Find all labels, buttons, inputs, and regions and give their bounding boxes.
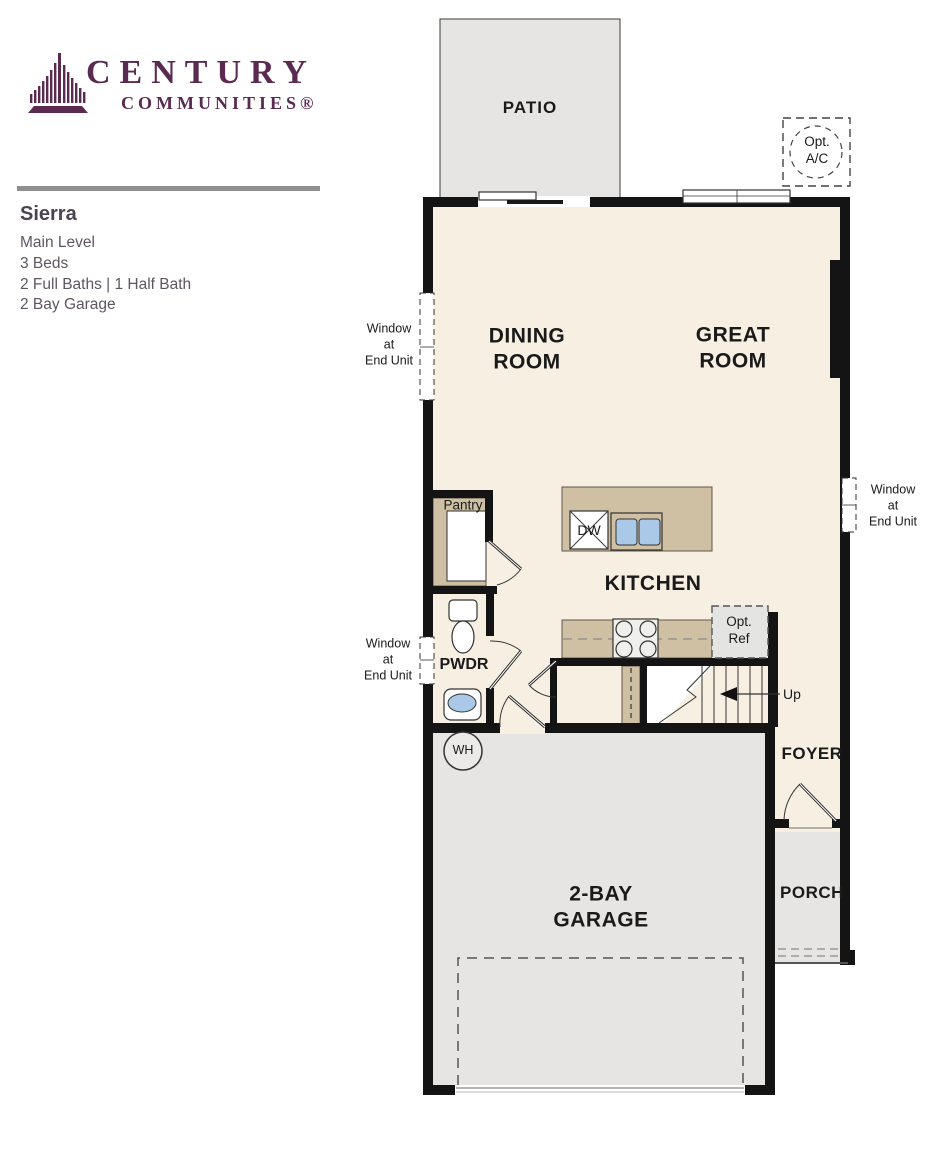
window-note-line1: Window (869, 482, 917, 498)
label-dishwasher: DW (577, 522, 600, 538)
label-porch: PORCH (780, 883, 844, 903)
sliding-door-panel-outer (479, 192, 536, 200)
end-unit-window-dining (420, 293, 434, 400)
window-note-line2: at (365, 337, 413, 353)
label-kitchen: KITCHEN (605, 571, 702, 597)
toilet-tank-icon (449, 600, 477, 621)
floorplan-page: CENTURY COMMUNITIES® Sierra Main Level 3… (0, 0, 943, 1150)
label-patio: PATIO (503, 98, 557, 118)
wall-garage-right (765, 723, 775, 1095)
garage-door-opening (455, 1085, 745, 1095)
label-dining-line2: ROOM (489, 349, 566, 375)
garage-entry-opening (500, 722, 545, 734)
label-garage-line2: GARAGE (553, 907, 648, 933)
sliding-door-panel-inner (507, 200, 563, 204)
window-note-line2: at (869, 498, 917, 514)
window-note-line3: End Unit (365, 353, 413, 369)
label-opt-ac-line2: A/C (804, 151, 830, 168)
label-window-end-unit-pwdr: Window at End Unit (364, 636, 412, 683)
wall-garage-top (428, 723, 775, 733)
pantry-shelf-inner (447, 511, 486, 581)
label-opt-ref: Opt. Ref (726, 614, 752, 648)
wall-closet-right (640, 666, 647, 726)
label-opt-ref-line2: Ref (726, 631, 752, 648)
wall-hall-left (550, 658, 557, 728)
label-garage: 2-BAY GARAGE (553, 881, 648, 932)
label-pwdr: PWDR (440, 656, 489, 674)
label-garage-line1: 2-BAY (553, 881, 648, 907)
sink-basin-right (639, 519, 660, 545)
fireplace-bump (830, 260, 845, 378)
great-room-top-window (683, 190, 790, 203)
wall-counter-bottom (552, 658, 778, 666)
floorplan-drawing (0, 0, 943, 1150)
end-unit-window-pwdr (420, 637, 434, 684)
label-up: Up (783, 686, 801, 702)
wall-pantry-right (485, 490, 493, 542)
wall-stairs-foyer (768, 612, 778, 727)
window-note-line1: Window (364, 636, 412, 652)
label-great-line1: GREAT (696, 322, 770, 348)
label-window-end-unit-great: Window at End Unit (869, 482, 917, 529)
label-window-end-unit-dining: Window at End Unit (365, 321, 413, 368)
wall-pwdr-right-upper (486, 594, 494, 636)
label-opt-ref-line1: Opt. (726, 614, 752, 631)
label-great-line2: ROOM (696, 348, 770, 374)
vanity-sink-icon (448, 694, 476, 712)
label-dining-line1: DINING (489, 323, 566, 349)
window-note-line3: End Unit (869, 514, 917, 530)
window-note-line1: Window (365, 321, 413, 337)
label-opt-ac: Opt. A/C (804, 134, 830, 168)
label-dining-room: DINING ROOM (489, 323, 566, 374)
toilet-bowl-icon (452, 621, 474, 653)
sink-basin-left (616, 519, 637, 545)
label-opt-ac-line1: Opt. (804, 134, 830, 151)
window-note-line2: at (364, 652, 412, 668)
label-water-heater: WH (453, 743, 474, 757)
range-icon (613, 619, 658, 658)
label-pantry: Pantry (443, 498, 482, 513)
label-foyer: FOYER (781, 744, 842, 764)
wall-pantry-bottom (428, 586, 497, 594)
label-great-room: GREAT ROOM (696, 322, 770, 373)
wall-pwdr-right-lower (486, 688, 494, 726)
wall-foyer-stub-left (770, 819, 789, 828)
window-note-line3: End Unit (364, 668, 412, 684)
